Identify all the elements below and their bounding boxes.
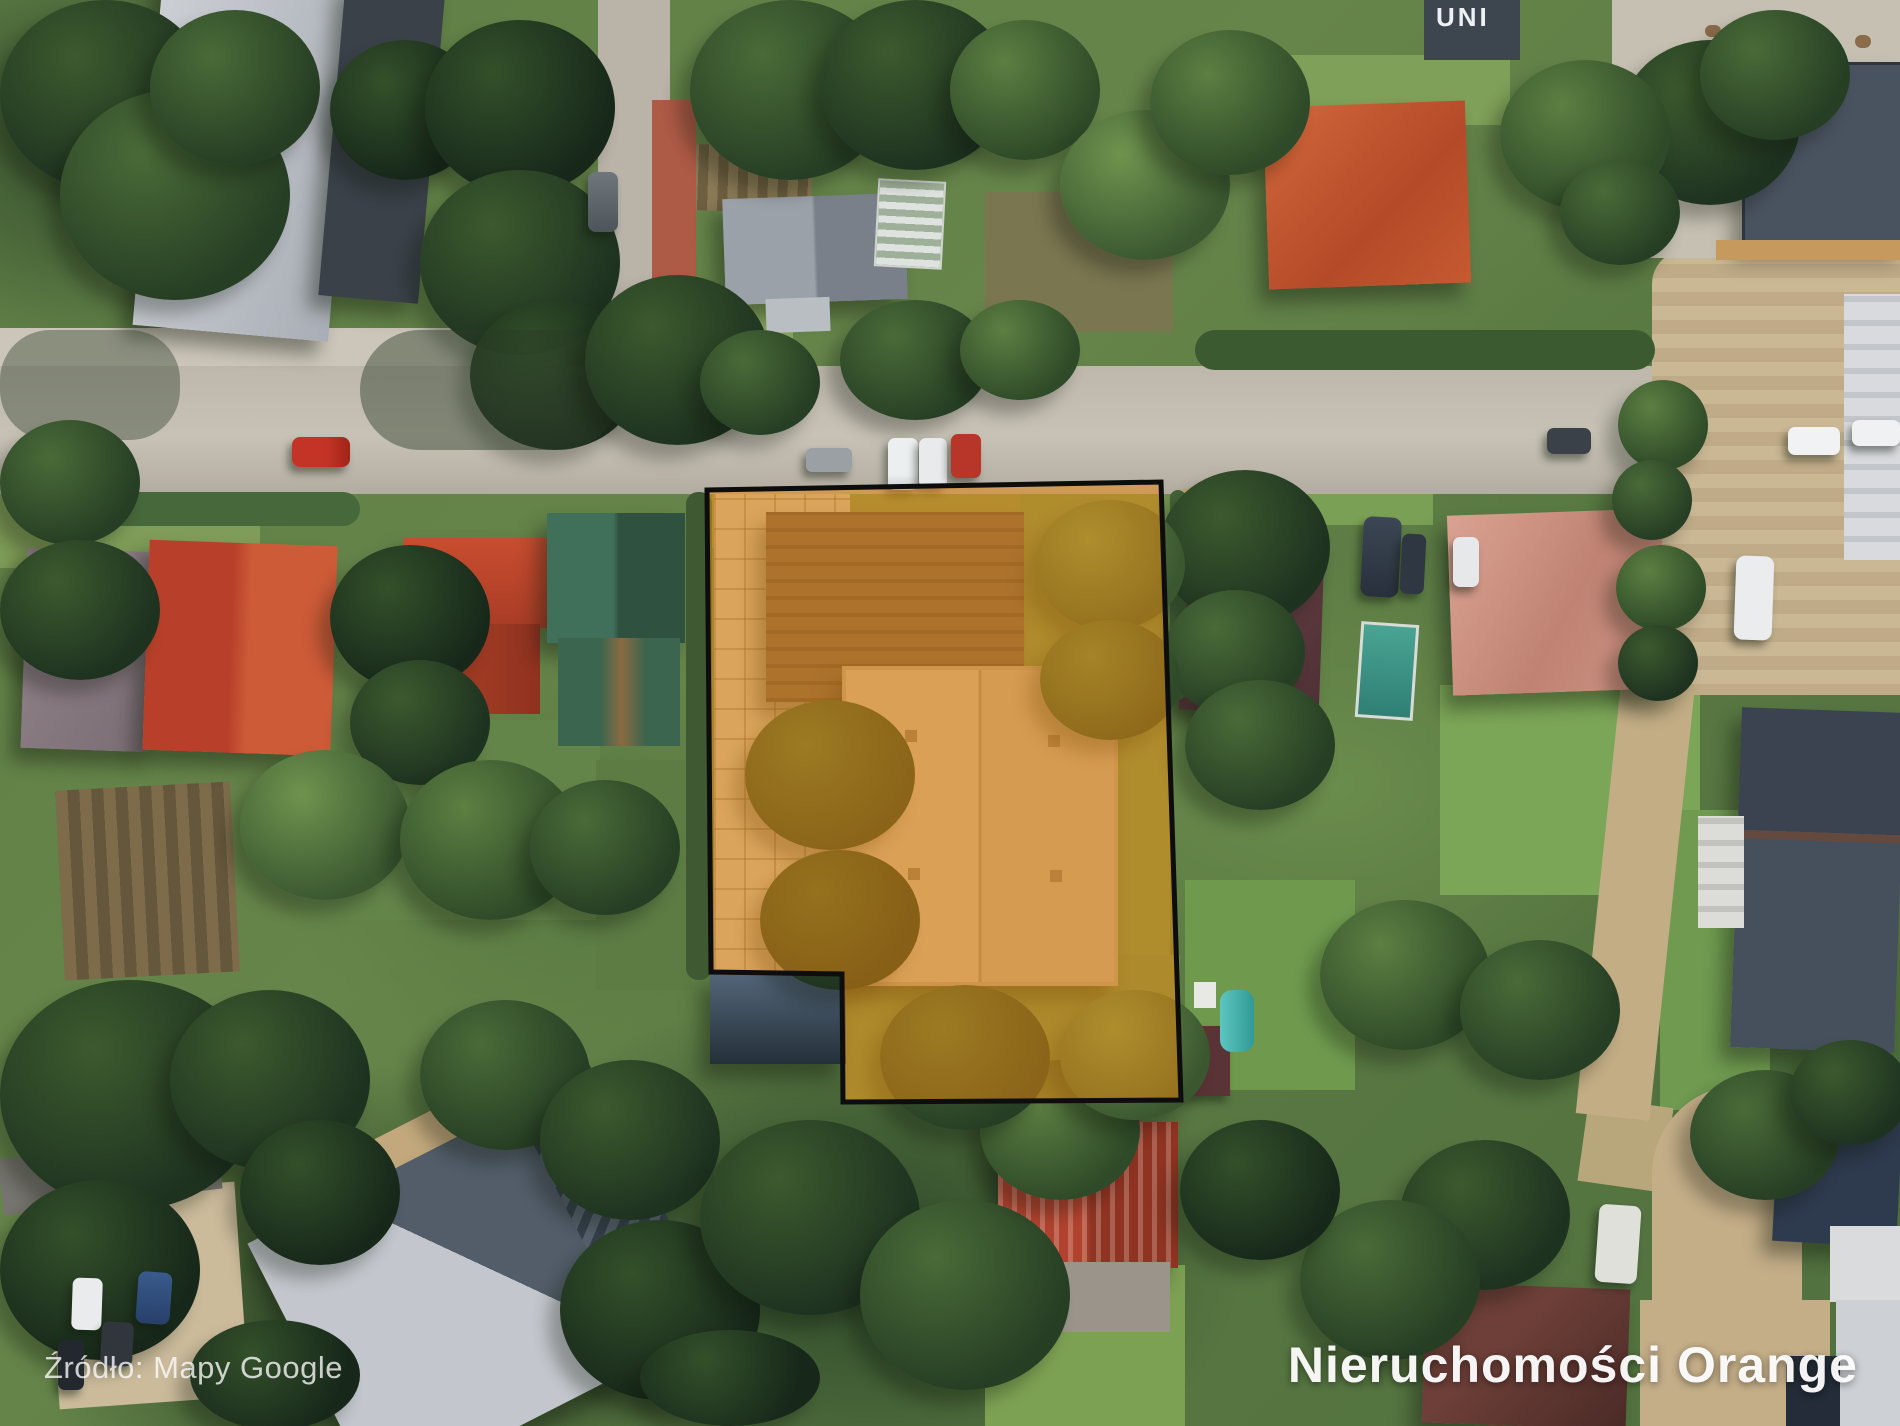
chimney xyxy=(905,730,917,742)
tree xyxy=(0,540,160,680)
tree xyxy=(240,1120,400,1265)
tree xyxy=(1616,545,1706,631)
tree xyxy=(1560,160,1680,265)
tree xyxy=(1060,990,1210,1120)
tree xyxy=(0,420,140,545)
tree xyxy=(1612,460,1692,540)
tree-shadow xyxy=(360,330,620,450)
tree xyxy=(960,300,1080,400)
tree xyxy=(700,330,820,435)
car-red xyxy=(951,434,981,478)
white-box xyxy=(1194,982,1216,1008)
green-metal-roof-house xyxy=(547,513,685,643)
brand-watermark: Nieruchomości Orange xyxy=(1288,1336,1858,1394)
tree xyxy=(1180,1120,1340,1260)
white-building xyxy=(1830,1226,1900,1302)
car-dark-blue xyxy=(1360,516,1402,598)
teal-tank xyxy=(1220,990,1254,1052)
green-rust-roof xyxy=(558,638,680,746)
tree-pit xyxy=(1855,35,1871,48)
tree xyxy=(540,1060,720,1220)
van-white xyxy=(1594,1204,1641,1285)
tree xyxy=(760,850,920,990)
tan-scaffold-strip xyxy=(1716,240,1900,260)
tree xyxy=(1150,30,1310,175)
car-white-van xyxy=(888,438,918,490)
rooftop-sign: UNI xyxy=(1436,2,1490,33)
car-white-van xyxy=(71,1277,103,1330)
car-white xyxy=(919,438,947,488)
tree xyxy=(640,1330,820,1426)
tree xyxy=(1460,940,1620,1080)
teal-pool xyxy=(1355,621,1420,721)
car-white xyxy=(1852,420,1900,446)
chimney xyxy=(1050,870,1062,882)
tree xyxy=(240,750,410,900)
tree xyxy=(0,1180,200,1360)
hedge xyxy=(686,492,712,980)
tree xyxy=(1035,500,1185,630)
garden-rows xyxy=(55,782,240,981)
car-white xyxy=(1453,537,1479,587)
tree xyxy=(745,700,915,850)
tree xyxy=(1618,625,1698,701)
tree xyxy=(150,10,320,165)
tree xyxy=(860,1200,1070,1390)
car-dark xyxy=(1399,533,1426,594)
car-gray xyxy=(806,448,852,472)
chimney xyxy=(908,868,920,880)
dark-building-southeast xyxy=(1730,707,1900,1053)
tree xyxy=(1040,620,1180,740)
white-shed xyxy=(765,297,830,333)
tree xyxy=(1185,680,1335,810)
aerial-map-view: UNI Źródło: Mapy Google Nieruchomości Or… xyxy=(0,0,1900,1426)
tree xyxy=(1618,380,1708,470)
source-attribution: Źródło: Mapy Google xyxy=(44,1350,343,1386)
car-white xyxy=(1734,555,1775,640)
car-white xyxy=(1788,427,1840,455)
car-blue xyxy=(135,1271,173,1325)
tree xyxy=(1790,1040,1900,1145)
tree xyxy=(1700,10,1850,140)
red-tile-roof-house xyxy=(142,540,337,756)
hedge xyxy=(1195,330,1655,370)
car-dark xyxy=(1547,428,1591,454)
white-annex xyxy=(1698,816,1744,928)
chimney xyxy=(1048,735,1060,747)
car-red xyxy=(292,437,350,467)
tree xyxy=(425,20,615,195)
tree xyxy=(880,985,1050,1130)
greenhouse xyxy=(874,178,947,269)
tree xyxy=(530,780,680,915)
car-gray xyxy=(588,172,618,232)
